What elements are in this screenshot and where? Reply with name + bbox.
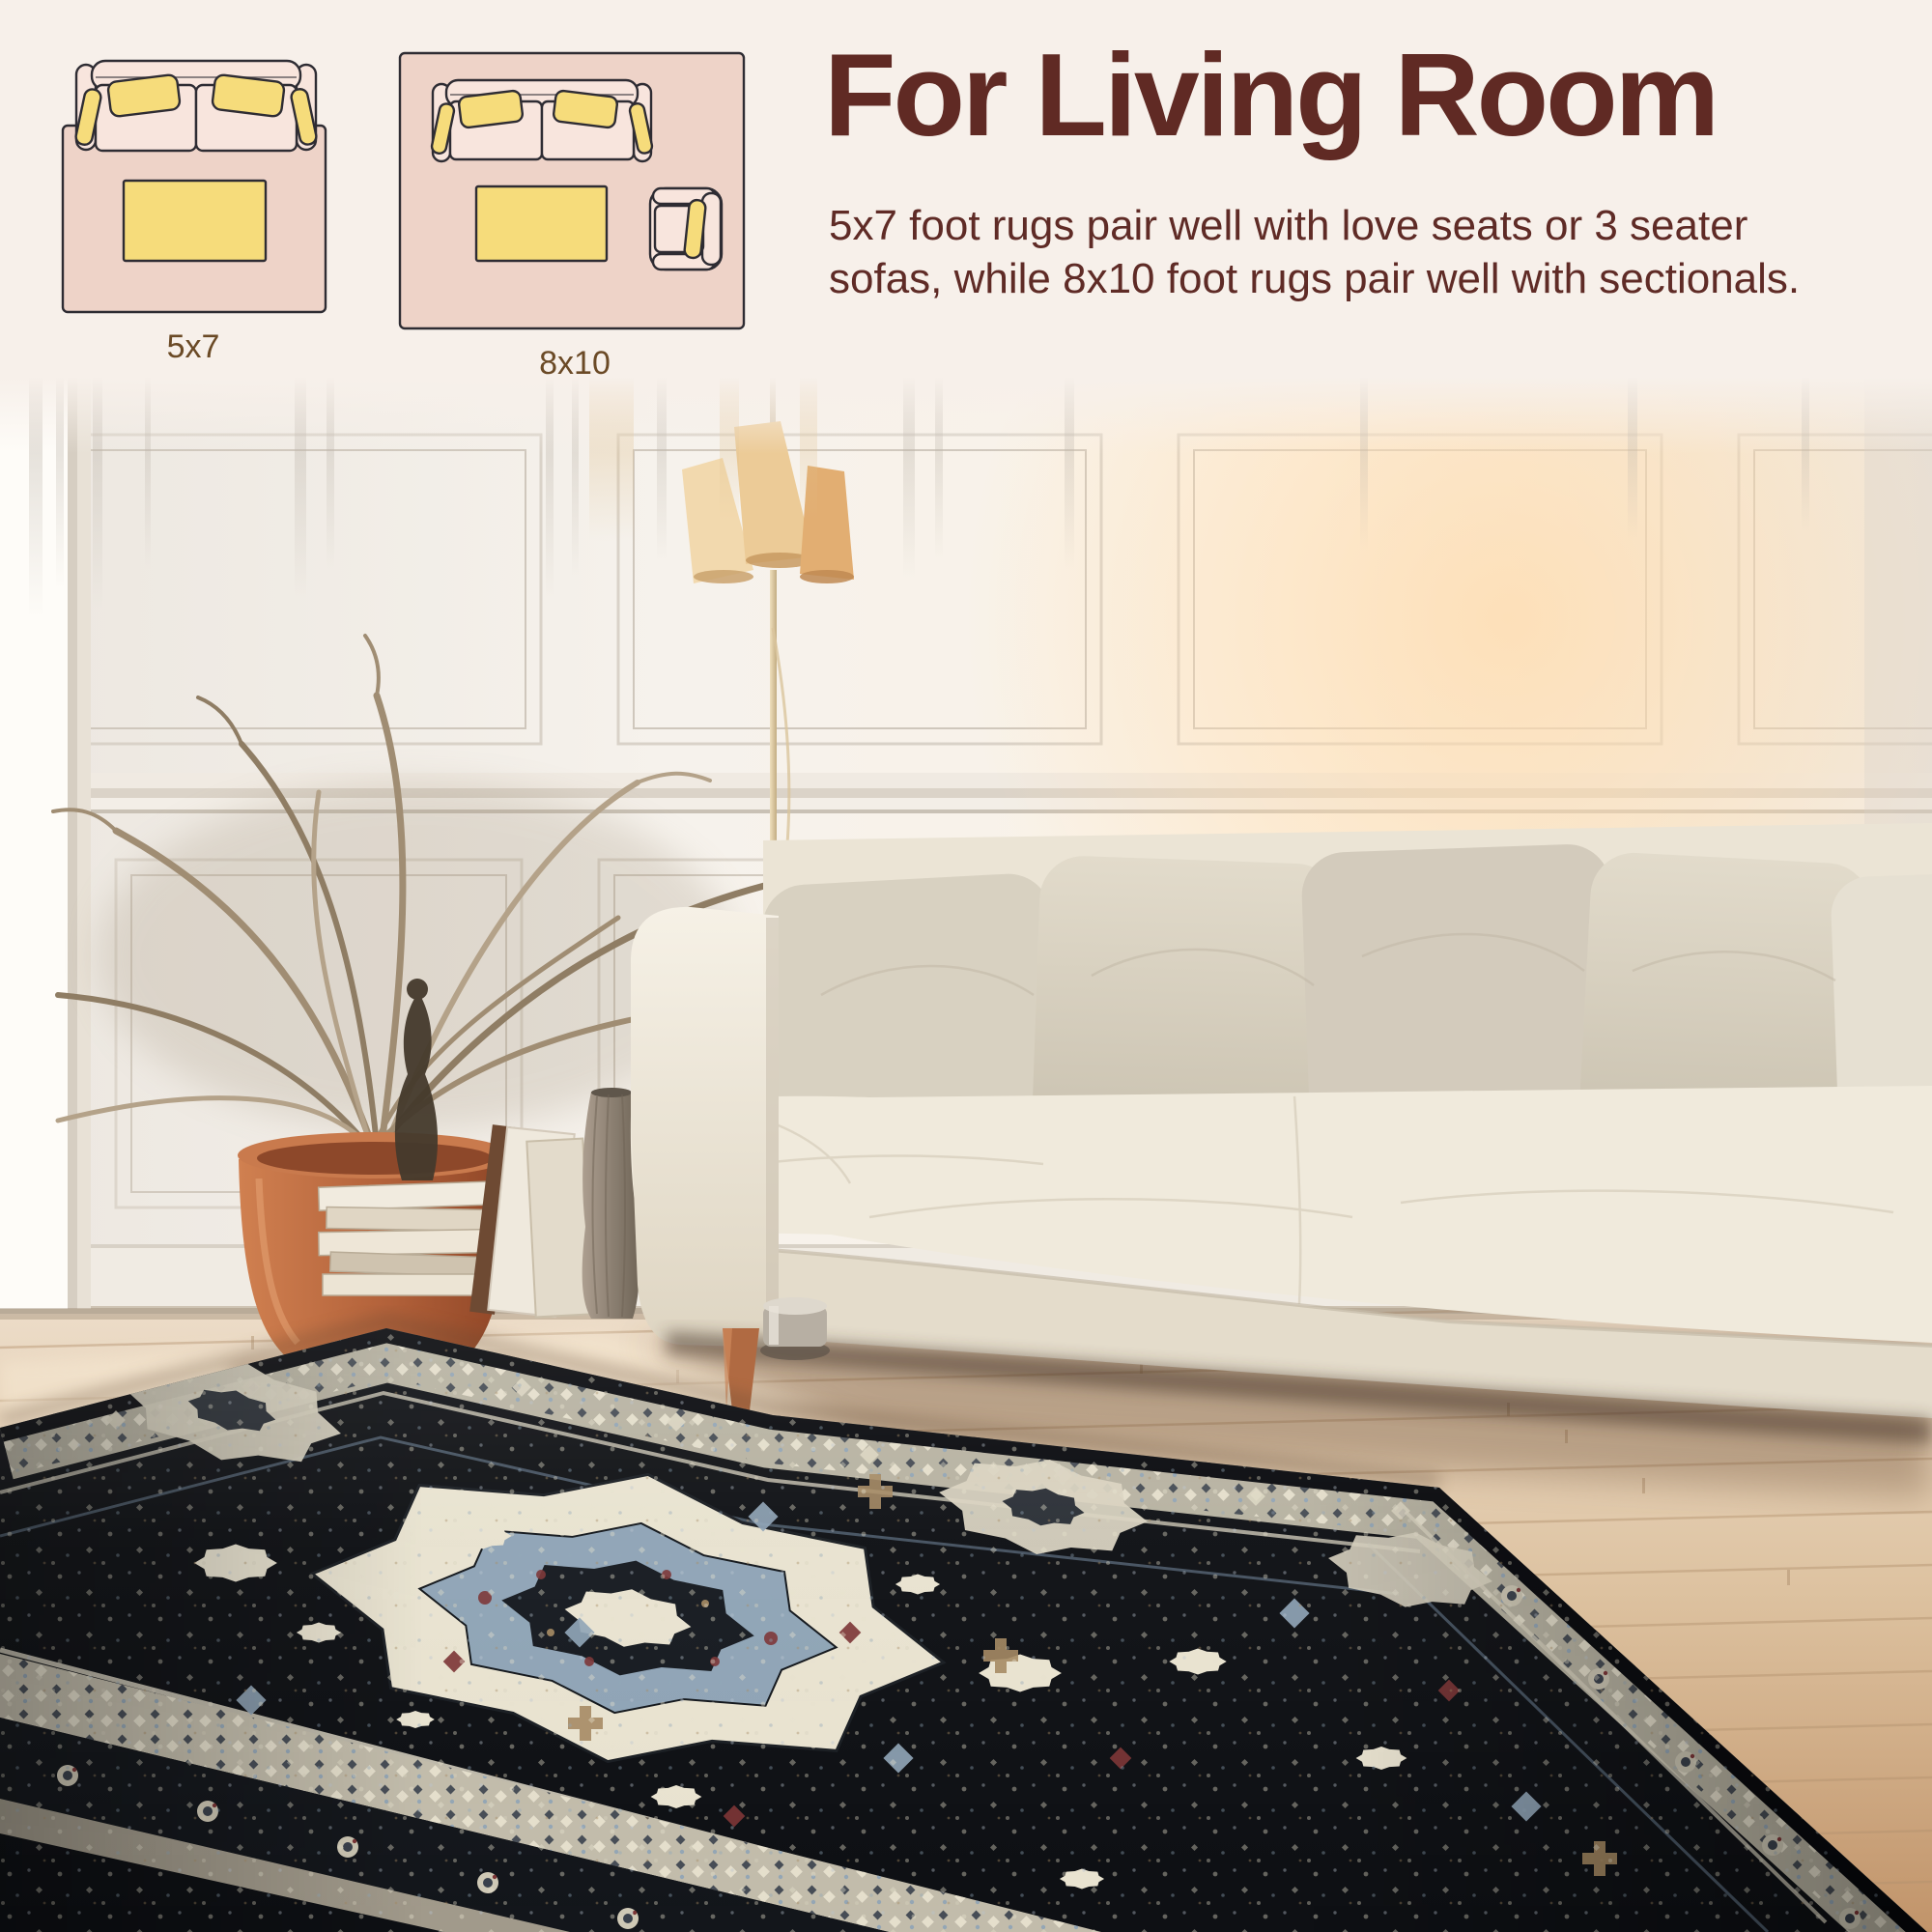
window-light — [0, 377, 91, 1309]
sofa-arm — [631, 907, 779, 1348]
description-line-1: 5x7 foot rugs pair well with love seats … — [829, 199, 1920, 252]
diagram-label-5x7: 5x7 — [48, 328, 338, 366]
photo-top-fade — [0, 377, 1932, 454]
rug-size-diagram-5x7: 5x7 — [48, 39, 338, 372]
diagram-sofa — [431, 80, 653, 161]
diagram-armchair — [650, 188, 722, 270]
description-line-2: sofas, while 8x10 foot rugs pair well wi… — [829, 252, 1920, 305]
diagram-coffee-table — [476, 186, 607, 261]
diagram-loveseat — [74, 61, 318, 151]
diagram-8x10-drawing — [396, 43, 753, 343]
living-room-photo — [0, 377, 1932, 1932]
page-title: For Living Room — [824, 27, 1717, 162]
page-description: 5x7 foot rugs pair well with love seats … — [829, 199, 1920, 306]
diagram-5x7-drawing — [48, 39, 338, 328]
lamp-base — [760, 1297, 830, 1360]
rug-size-diagram-8x10: 8x10 — [396, 43, 753, 382]
diagram-coffee-table — [124, 181, 266, 261]
